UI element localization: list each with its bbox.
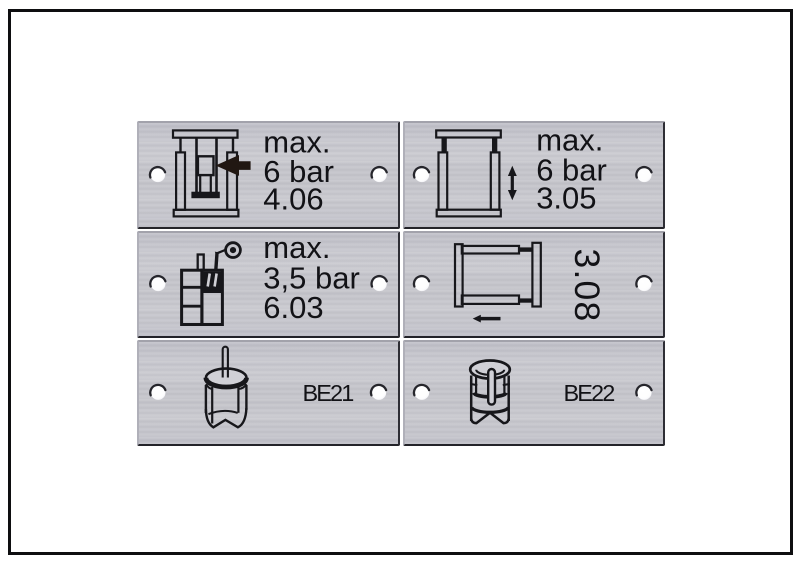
svg-text:BE21: BE21 [303,380,354,406]
svg-text:BE22: BE22 [564,380,615,406]
svg-text:3.08: 3.08 [567,249,607,323]
svg-text:3.05: 3.05 [536,181,596,216]
svg-text:6.03: 6.03 [263,290,323,325]
svg-text:4.06: 4.06 [263,182,323,217]
